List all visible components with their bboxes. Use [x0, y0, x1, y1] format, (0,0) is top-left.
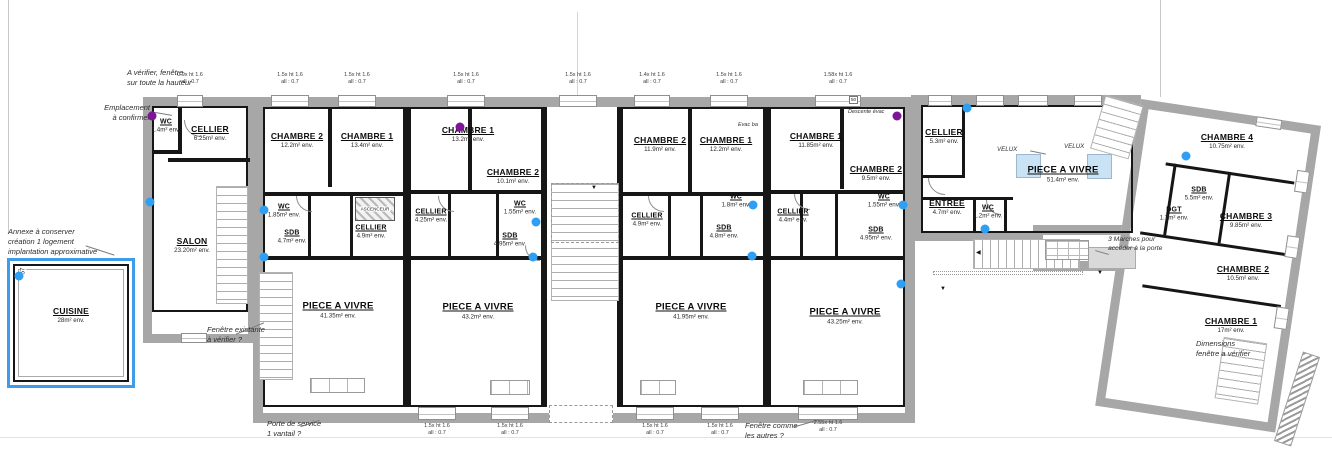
room-label-dgt-g: DGT1.7m² env.	[1160, 207, 1189, 222]
window-gap	[271, 95, 309, 107]
marker-dot-blue	[1182, 152, 1191, 161]
marker-dot-purple	[148, 112, 157, 121]
wall-segment	[152, 150, 182, 154]
wall-segment	[168, 158, 250, 162]
wing-wall	[1163, 164, 1177, 236]
window-gap	[338, 95, 376, 107]
arrow-down-icon: ▼	[940, 286, 946, 292]
marker-dot-blue	[963, 104, 972, 113]
window-label: 1.5x ht 1.6all : 0.7	[277, 72, 303, 86]
room-label-wc-f: WC1.2m² env.	[974, 205, 1003, 220]
annotation-evac: Evac ba	[738, 122, 758, 129]
marker-dot-blue	[529, 253, 538, 262]
arrow-down-icon: ▼	[1097, 270, 1103, 276]
annotation-verify-window: A vérifier, fenêtre sur toute la hauteur	[127, 68, 192, 88]
arrow-left-icon: ◀	[976, 250, 981, 256]
room-label-chambre2-g: CHAMBRE 210.5m² env.	[1217, 264, 1269, 282]
room-label-chambre2-e: CHAMBRE 29.5m² env.	[850, 164, 902, 182]
wall-segment	[350, 194, 353, 258]
window-label: 1.5x ht 1.6all : 0.7	[642, 423, 668, 437]
room-label-chambre3-g: CHAMBRE 39.85m² env.	[1220, 211, 1272, 229]
marker-dot-blue	[260, 206, 269, 215]
arrow-down-icon: ▼	[591, 185, 597, 191]
window-label: 1.5x ht 1.6all : 0.7	[497, 423, 523, 437]
room-label-salon: SALON23.20m² env.	[174, 236, 210, 254]
window-label: 1.5x ht 1.6all : 0.7	[424, 423, 450, 437]
annotation-annexe: Annexe à conserver création 1 logement i…	[8, 227, 97, 256]
wall-segment	[263, 256, 405, 260]
wing-wall	[1218, 172, 1232, 244]
dimension-50: 50	[849, 96, 858, 104]
room-label-chambre1-g: CHAMBRE 117m² env.	[1205, 316, 1257, 334]
marker-dot-blue	[981, 225, 990, 234]
kitchen-counter	[490, 380, 530, 395]
window-label: 2.55x ht 1.6all : 0.7	[814, 420, 843, 434]
kitchen-counter	[803, 380, 858, 395]
room-label-pav-c: PIECE A VIVRE43.2m² env.	[442, 302, 513, 321]
floor-plan: ▼ ◀ ▼ ▼ 0.9	[0, 0, 1332, 460]
kitchen-counter	[640, 380, 676, 395]
wall-segment	[621, 256, 765, 260]
room-label-chambre2-d: CHAMBRE 211.9m² env.	[634, 135, 686, 153]
marker-dot-blue	[260, 253, 269, 262]
window-label: 1.5x ht 1.6all : 0.7	[716, 72, 742, 86]
window-gap	[177, 95, 203, 107]
room-label-sdb-d: SDB4.8m² env.	[710, 225, 739, 240]
window-gap	[798, 407, 858, 420]
room-label-chambre1-c: CHAMBRE 113.2m² env.	[442, 125, 494, 143]
window-gap	[701, 407, 739, 420]
marker-dot-purple	[456, 123, 465, 132]
room-label-cellier-a: CELLIER6.25m² env.	[191, 124, 229, 142]
marker-dot-purple	[893, 112, 902, 121]
wall-segment	[835, 192, 838, 256]
wall-segment	[769, 256, 905, 260]
window-label: 1.4x ht 1.6all : 0.7	[639, 72, 665, 86]
wall-segment	[468, 107, 472, 192]
room-label-chambre2-b: CHAMBRE 212.2m² env.	[271, 131, 323, 149]
room-label-cellier-b: CELLIER4.9m² env.	[355, 225, 386, 240]
window-gap	[636, 407, 674, 420]
entrance-double-door	[549, 405, 613, 423]
window-gap	[491, 407, 529, 420]
room-label-wc-d: WC1.8m² env.	[722, 194, 751, 209]
annotation-fenetre-comme: Fenêtre comme les autres ?	[745, 421, 798, 441]
window-gap	[634, 95, 670, 107]
window-gap	[1284, 235, 1300, 259]
wall-segment	[1004, 197, 1007, 231]
party-wall	[543, 107, 547, 407]
marker-dot-blue	[532, 218, 541, 227]
room-label-chambre4-g: CHAMBRE 410.75m² env.	[1201, 132, 1253, 150]
window-label: 1.5x ht 1.6all : 0.7	[344, 72, 370, 86]
room-label-chambre1-e: CHAMBRE 111.85m² env.	[790, 131, 842, 149]
kitchen-counter	[310, 378, 365, 393]
room-label-chambre2-c: CHAMBRE 210.1m² env.	[487, 167, 539, 185]
window-gap	[418, 407, 456, 420]
window-gap	[181, 333, 207, 343]
window-gap	[1018, 95, 1048, 106]
wall-segment	[688, 107, 692, 192]
window-gap	[559, 95, 597, 107]
window-gap	[928, 95, 952, 106]
room-label-pav-b: PIECE A VIVRE41.35m² env.	[302, 301, 373, 320]
wall-segment	[668, 194, 671, 258]
room-label-wc-a: WC1.4m² env.	[152, 119, 181, 134]
annotation-descente-evac: Descente évac	[848, 109, 884, 116]
boundary-line	[1160, 0, 1161, 97]
marker-dot-blue	[146, 198, 155, 207]
room-label-ascenseur: ASCENCEUR	[360, 207, 391, 212]
room-label-cellier-c: CELLIER4.25m² env.	[415, 209, 447, 224]
room-label-sdb-c: SDB4.95m² env.	[494, 233, 526, 248]
window-label: 1.5x ht 1.6all : 0.7	[707, 423, 733, 437]
room-label-pav-e: PIECE A VIVRE43.25m² env.	[809, 307, 880, 326]
window-grid	[1045, 240, 1089, 260]
annotation-porte-service: Porte de service 1 vantail ?	[267, 419, 321, 439]
room-label-wc-b: WC1.85m² env.	[268, 204, 300, 219]
annotation-emplacement: Emplacement à confirmer	[100, 103, 150, 123]
room-label-wc-c: WC1.55m² env.	[504, 201, 536, 216]
marker-dot-blue	[15, 272, 24, 281]
room-label-cellier-e: CELLIER4.4m² env.	[777, 209, 808, 224]
wall-segment	[409, 190, 543, 194]
room-label-cellier-d: CELLIER4.9m² env.	[631, 213, 662, 228]
room-label-sdb-e: SDB4.95m² env.	[860, 227, 892, 242]
room-label-sdb-g: SDB5.5m² env.	[1185, 187, 1214, 202]
marker-dot-blue	[748, 252, 757, 261]
window-gap	[1274, 306, 1290, 330]
room-label-chambre1-d: CHAMBRE 112.2m² env.	[700, 135, 752, 153]
marker-dot-blue	[899, 201, 908, 210]
annotation-marches: 3 Marches pour accéder à la porte	[1108, 236, 1162, 254]
velux-label: VELUX	[1064, 143, 1084, 150]
room-label-wc-e: WC1.55m² env.	[868, 194, 900, 209]
wall-segment	[700, 194, 703, 258]
wall-segment	[263, 192, 405, 196]
window-label: 1.58x ht 1.6all : 0.7	[824, 72, 853, 86]
wing-wall	[1142, 284, 1281, 308]
stairs-landing-dashed	[933, 271, 1083, 275]
window-label: 1.5x ht 1.6all : 0.7	[565, 72, 591, 86]
window-gap	[447, 95, 485, 107]
stairs-central-dashed	[551, 183, 619, 243]
room-label-cellier-f: CELLIER5.3m² env.	[925, 127, 963, 145]
stairs-unit-a	[216, 186, 248, 304]
annotation-fenetre-existante: Fenêtre existante à vérifier ?	[207, 325, 265, 345]
room-label-pav-f: PIECE A VIVRE51.4m² env.	[1027, 165, 1098, 184]
annotation-dimensions-fenetre: Dimensions fenêtre a vérifier	[1196, 339, 1250, 359]
wall-segment	[328, 107, 332, 187]
room-label-sdb-b: SDB4.7m² env.	[278, 230, 307, 245]
window-gap	[1074, 95, 1102, 106]
window-label: 1.5x ht 1.6all : 0.7	[453, 72, 479, 86]
velux-label: VELUX	[997, 146, 1017, 153]
room-label-cuisine: CUISINE28m² env.	[53, 306, 89, 324]
marker-dot-blue	[749, 201, 758, 210]
window-gap	[710, 95, 748, 107]
room-label-chambre1-b: CHAMBRE 113.4m² env.	[341, 131, 393, 149]
wall-segment	[409, 256, 543, 260]
marker-dot-blue	[897, 280, 906, 289]
room-label-pav-d: PIECE A VIVRE41.95m² env.	[655, 302, 726, 321]
window-gap	[976, 95, 1004, 106]
window-gap	[1294, 170, 1310, 194]
room-label-entree-f: ENTREE4.7m² env.	[929, 198, 965, 216]
window-gap	[1255, 116, 1282, 130]
boundary-line	[8, 0, 9, 234]
